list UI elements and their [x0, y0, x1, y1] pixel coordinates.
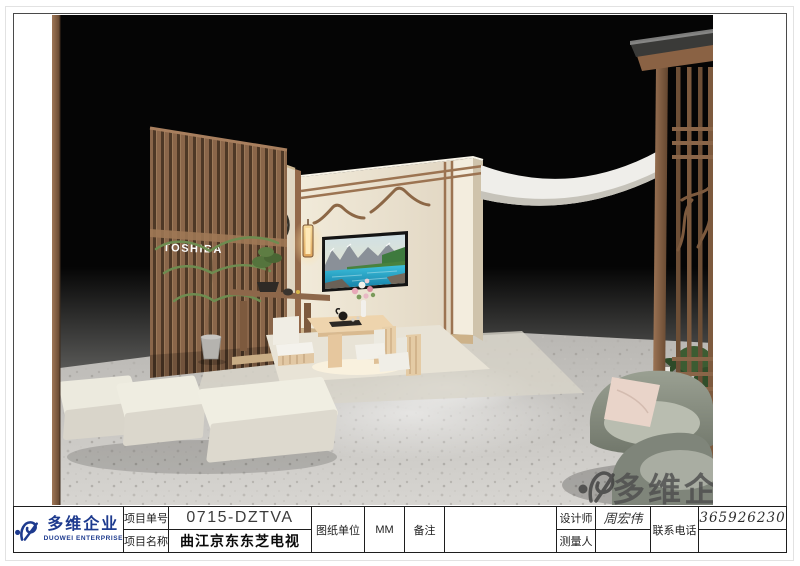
wall-tv — [322, 231, 408, 292]
project-name-label: 项目名称 — [124, 530, 169, 553]
ottoman-2 — [120, 379, 202, 443]
wall-lantern — [292, 219, 324, 267]
drawing-unit-label: 图纸单位 — [312, 507, 365, 552]
company-name-en: DUOWEI ENTERPRISE — [44, 535, 123, 542]
remarks-value — [445, 507, 557, 552]
left-edge-post — [52, 15, 60, 505]
phone-value: 13659262305 — [699, 507, 786, 530]
booth-render-scene: TOSHIBA — [52, 15, 713, 505]
project-name-value: 曲江京东东芝电视 — [169, 530, 312, 553]
company-name: 多维企业 — [47, 517, 119, 534]
surveyor-value — [596, 530, 651, 553]
project-no-value: 0715-DZTVA — [169, 507, 312, 530]
drawing-title-block: 多维企业 DUOWEI ENTERPRISE 项目单号 0715-DZTVA 图… — [13, 506, 787, 553]
plant-pot — [201, 337, 221, 359]
teapot — [339, 312, 348, 321]
designer-label: 设计师 — [557, 507, 596, 530]
watermark-text: 多维企业 — [612, 471, 713, 505]
teaware — [283, 289, 293, 296]
surveyor-label: 测量人 — [557, 530, 596, 553]
phone-value-empty — [699, 530, 786, 553]
throw-pillow — [604, 377, 660, 427]
tv-screen — [325, 232, 405, 292]
company-logo: 多维企业 DUOWEI ENTERPRISE — [14, 507, 124, 552]
ottoman-3 — [202, 381, 334, 459]
phone-label: 联系电话 — [651, 507, 699, 552]
watermark: 多维企业 — [579, 471, 714, 505]
remarks-label: 备注 — [405, 507, 445, 552]
designer-value: 周宏伟 — [596, 507, 651, 530]
bird-figurine — [296, 290, 300, 294]
ottoman-bench-group — [62, 379, 337, 474]
render-image: TOSHIBA — [52, 15, 713, 505]
project-no-label: 项目单号 — [124, 507, 169, 530]
drawing-unit-value: MM — [365, 507, 405, 552]
logo-mark-icon — [14, 514, 40, 546]
